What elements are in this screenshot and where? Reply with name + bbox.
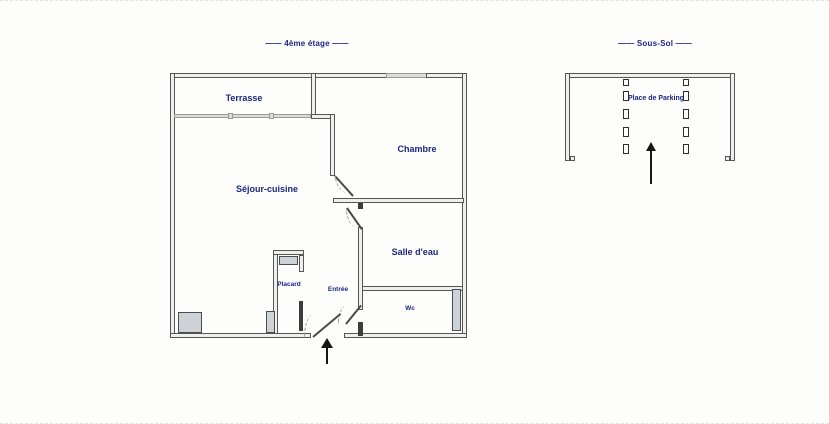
- parking-space-label: Place de Parking: [627, 95, 685, 102]
- entrance-door-swing: [304, 314, 314, 337]
- room-label-sejour: Séjour-cuisine: [217, 184, 317, 194]
- parking-wall-right-foot: [725, 156, 730, 161]
- parking-post: [623, 127, 629, 137]
- wc-wall-stub: [358, 322, 363, 336]
- room-label-placard: Placard: [264, 281, 314, 288]
- salle-eau-wall-stub: [358, 203, 363, 209]
- floor-plan-sheet: —— 4ème étage ——: [0, 0, 829, 424]
- entrance-direction-arrow-shaft: [326, 347, 328, 364]
- parking-plan-title: —— Sous-Sol ——: [565, 39, 745, 48]
- room-label-wc: Wc: [390, 305, 430, 312]
- parking-post: [683, 127, 689, 137]
- chambre-wall-left: [330, 114, 335, 176]
- parking-post: [683, 109, 689, 119]
- parking-post: [683, 144, 689, 154]
- parking-post: [623, 109, 629, 119]
- placard-door-bar: [299, 301, 303, 331]
- chambre-window: [386, 73, 427, 78]
- apartment-wall-top-left: [170, 73, 387, 78]
- salle-eau-wall-left: [358, 227, 363, 310]
- salle-eau-wc-divider: [362, 286, 463, 291]
- terrace-glazing-marker: [269, 113, 274, 119]
- chambre-wall-bottom: [333, 198, 464, 203]
- placard-wall-right: [299, 255, 304, 272]
- room-label-chambre: Chambre: [377, 144, 457, 154]
- apartment-wall-left: [170, 73, 175, 338]
- room-label-salle-eau: Salle d'eau: [375, 247, 455, 257]
- pillar-wc: [452, 289, 461, 331]
- placard-shelf: [279, 256, 298, 265]
- floor-plan-title: —— 4ème étage ——: [212, 39, 402, 48]
- parking-wall-left-foot: [570, 156, 575, 161]
- parking-post: [623, 144, 629, 154]
- apartment-wall-top-right: [426, 73, 467, 78]
- apartment-wall-bottom-left: [170, 333, 311, 338]
- entrance-door-leaf: [312, 313, 341, 338]
- parking-wall-top: [565, 73, 735, 78]
- parking-direction-arrow-shaft: [650, 150, 652, 184]
- terrace-glazing-marker: [228, 113, 233, 119]
- salle-eau-door-swing: [346, 209, 358, 228]
- terrace-glazing: [174, 114, 311, 118]
- room-label-terrasse: Terrasse: [204, 93, 284, 103]
- parking-wall-right: [730, 73, 735, 161]
- parking-post: [623, 79, 629, 86]
- pillar-bottom-left: [178, 312, 202, 333]
- room-label-entree: Entrée: [313, 286, 363, 293]
- terrace-wall-right: [311, 73, 316, 119]
- pillar-placard: [266, 311, 275, 333]
- apartment-wall-right: [462, 73, 467, 338]
- chambre-door-swing: [335, 176, 351, 194]
- parking-post: [683, 79, 689, 86]
- parking-wall-left: [565, 73, 570, 161]
